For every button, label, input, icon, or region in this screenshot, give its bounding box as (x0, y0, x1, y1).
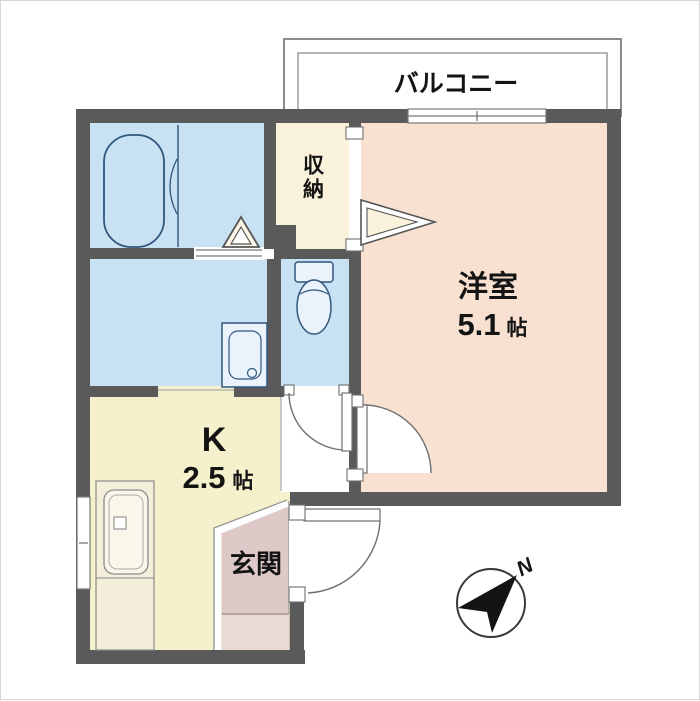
western-room-size-unit: 帖 (507, 317, 528, 340)
wall-bottom (76, 650, 305, 664)
kitchen-size: 2.5 (182, 460, 225, 495)
wall-westroom-bottom (290, 492, 621, 506)
compass-north-label: N (513, 553, 538, 581)
entrance-label: 玄関 (230, 549, 282, 579)
toilet-icon (295, 262, 333, 334)
kitchen-size-unit: 帖 (233, 470, 254, 493)
wall-bath-bottom (90, 248, 194, 259)
kitchen-window (77, 497, 90, 589)
kitchen-counter (96, 481, 154, 650)
entrance-step (219, 614, 289, 650)
balcony-window (408, 109, 546, 123)
western-room-size: 5.1 (457, 307, 500, 342)
wall-right (607, 109, 621, 506)
floor-plan: N バルコニー 洋室 5.1 帖 K 2.5 帖 収納 玄関 (1, 1, 700, 701)
storage-label: 収納 (301, 154, 325, 202)
wall-storage-notch (274, 225, 296, 259)
bathroom-door-opening (194, 247, 264, 260)
balcony-label: バルコニー (394, 70, 519, 98)
washbasin-icon (222, 323, 267, 387)
toilet-doorway (284, 385, 349, 395)
wall-washroom-bottom-left (90, 386, 158, 397)
compass: N (457, 553, 538, 637)
kitchen-faucet-icon (114, 517, 126, 529)
entrance-doorway (289, 519, 305, 589)
wall-washroom-toilet (267, 259, 281, 386)
kitchen-label: K (202, 421, 227, 459)
western-room-label: 洋室 (458, 270, 518, 304)
kitchen-sink-icon (104, 490, 148, 574)
floor-plan-page: N バルコニー 洋室 5.1 帖 K 2.5 帖 収納 玄関 (0, 0, 700, 700)
